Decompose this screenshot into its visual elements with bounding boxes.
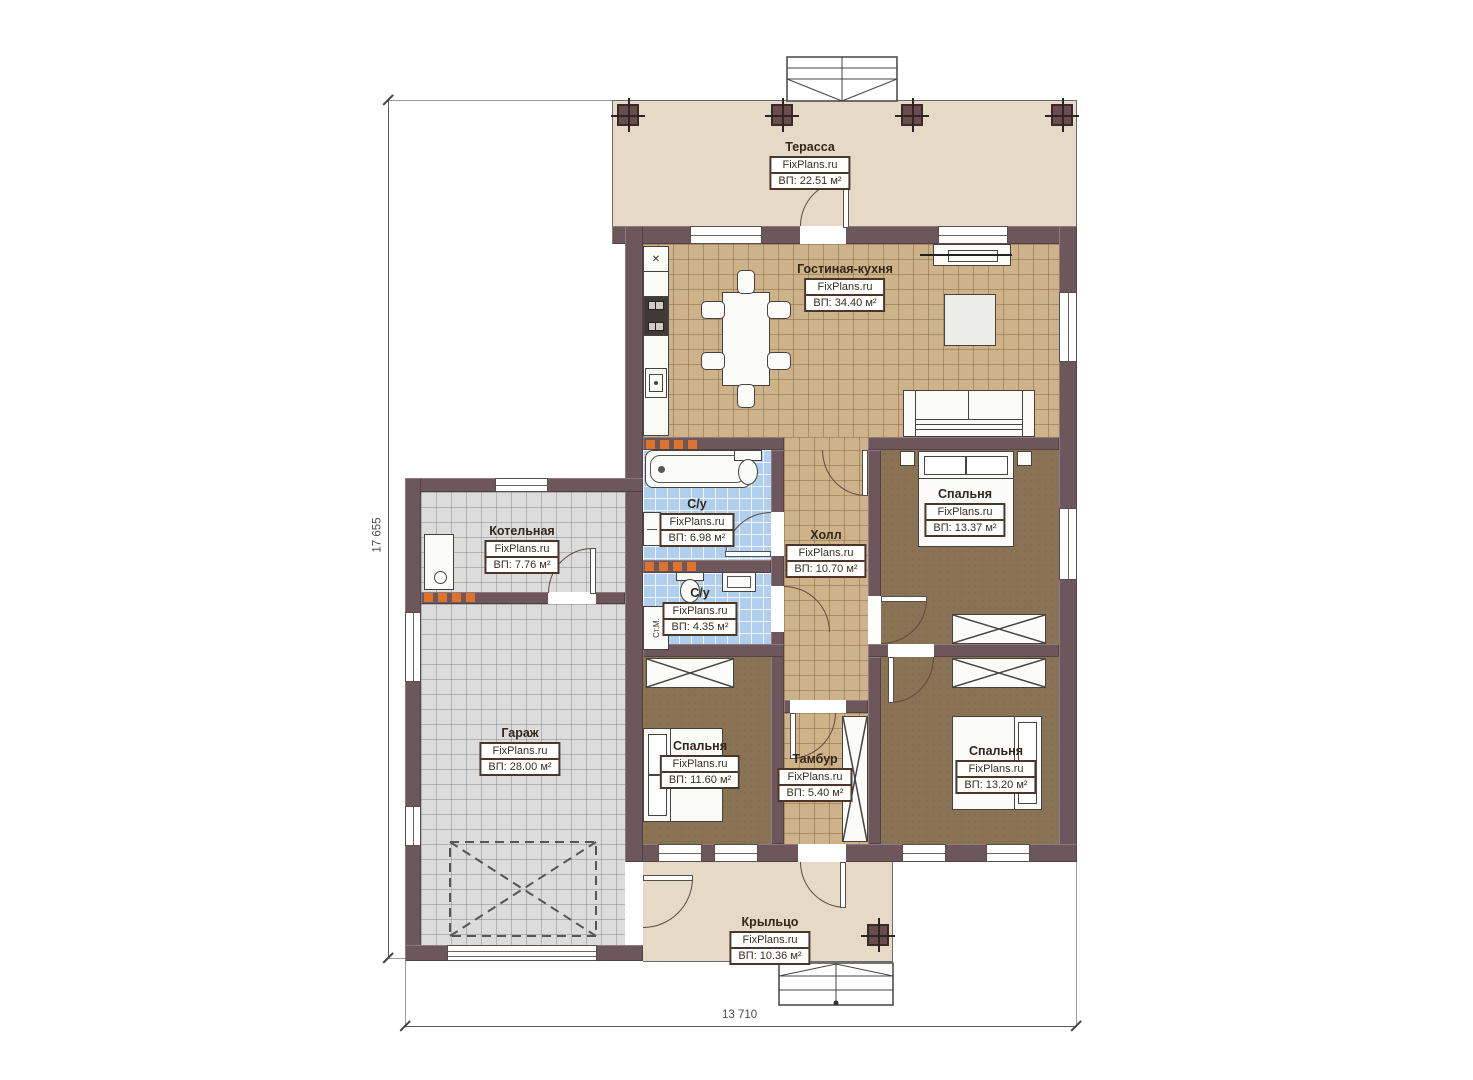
chair [767, 352, 791, 370]
brand-watermark: FixPlans.ru [486, 542, 557, 558]
window [1059, 292, 1077, 362]
wall-left-main [625, 226, 643, 862]
room-area: ВП: 28.00 м² [481, 760, 558, 774]
dimension-extension [1076, 862, 1077, 1026]
terrace-stairs [786, 56, 898, 102]
room-area: ВП: 11.60 м² [662, 773, 738, 787]
door-opening [625, 878, 643, 928]
brand-watermark: FixPlans.ru [661, 515, 732, 531]
room-label-garage: Гараж FixPlans.ru ВП: 28.00 м² [479, 726, 560, 776]
coffee-table [944, 294, 996, 346]
room-label-bathroom-small: С/у FixPlans.ru ВП: 4.35 м² [662, 586, 737, 636]
door-leaf [590, 548, 596, 594]
chair [737, 384, 755, 408]
brand-watermark: FixPlans.ru [481, 744, 558, 760]
room-area: ВП: 10.36 м² [731, 949, 808, 963]
room-label-bedroom-left: Спальня FixPlans.ru ВП: 11.60 м² [660, 739, 740, 789]
wall-bedroom-right-left [868, 657, 881, 844]
stove [644, 296, 668, 336]
dimension-line-bottom [405, 1026, 1077, 1027]
floor-plan: ✕ Ст.М. [0, 0, 1473, 1080]
door-opening [798, 844, 846, 862]
room-area: ВП: 6.98 м² [661, 531, 732, 545]
radiator [424, 593, 478, 602]
terrace-post [1051, 104, 1073, 126]
brand-watermark: FixPlans.ru [926, 505, 1003, 521]
door-opening [771, 512, 784, 556]
door-leaf [840, 862, 846, 908]
room-info-box: FixPlans.ru ВП: 5.40 м² [777, 768, 852, 802]
brand-watermark: FixPlans.ru [664, 604, 735, 620]
door-opening [888, 644, 934, 657]
dining-table [722, 292, 770, 386]
room-info-box: FixPlans.ru ВП: 22.51 м² [769, 156, 850, 190]
terrace-post [901, 104, 923, 126]
brand-watermark: FixPlans.ru [806, 280, 883, 296]
door-opening [548, 592, 596, 604]
dimension-extension [388, 100, 612, 101]
wardrobe [646, 658, 734, 688]
window [714, 844, 758, 862]
terrace-post [617, 104, 639, 126]
window [690, 226, 762, 244]
window [405, 806, 421, 846]
wardrobe [952, 614, 1046, 644]
window [405, 612, 421, 682]
window [1059, 508, 1077, 580]
room-label-terrace: Терасса FixPlans.ru ВП: 22.51 м² [769, 140, 850, 190]
room-label-bedroom-right: Спальня FixPlans.ru ВП: 13.20 м² [955, 744, 1036, 794]
porch-post [867, 924, 889, 946]
dimension-line-left [388, 100, 389, 958]
parking-zone [448, 840, 598, 938]
door-leaf [862, 450, 868, 496]
window [986, 844, 1030, 862]
sofa [903, 390, 1035, 437]
wall-kitchen-bottom-right [868, 437, 1059, 450]
door-opening [790, 700, 846, 713]
room-name: Котельная [484, 524, 559, 538]
room-info-box: FixPlans.ru ВП: 6.98 м² [659, 513, 734, 547]
room-area: ВП: 13.37 м² [926, 521, 1003, 535]
room-name: Тамбур [777, 752, 852, 766]
garage-door [447, 945, 597, 961]
room-area: ВП: 13.20 м² [957, 778, 1034, 792]
brand-watermark: FixPlans.ru [771, 158, 848, 174]
room-info-box: FixPlans.ru ВП: 13.37 м² [924, 503, 1005, 537]
window [658, 844, 702, 862]
room-name: Терасса [769, 140, 850, 154]
door-leaf [888, 657, 894, 703]
room-name: Спальня [955, 744, 1036, 758]
brand-watermark: FixPlans.ru [779, 770, 850, 786]
kitchen-sink-icon: ✕ [643, 246, 669, 272]
room-label-living-kitchen: Гостиная-кухня FixPlans.ru ВП: 34.40 м² [797, 262, 893, 312]
room-label-hall: Холл FixPlans.ru ВП: 10.70 м² [785, 528, 866, 578]
door-leaf [643, 875, 693, 881]
room-info-box: FixPlans.ru ВП: 4.35 м² [662, 602, 737, 636]
brand-watermark: FixPlans.ru [731, 933, 808, 949]
kitchen-counter [643, 246, 669, 436]
room-info-box: FixPlans.ru ВП: 10.36 м² [729, 931, 810, 965]
window [902, 844, 946, 862]
porch-stairs [778, 962, 894, 1006]
wall-wing-left [405, 478, 421, 961]
bathroom-sink [643, 512, 661, 546]
toilet-bowl [738, 459, 758, 485]
room-name: Крыльцо [729, 915, 810, 929]
room-label-bathroom-big: С/у FixPlans.ru ВП: 6.98 м² [659, 497, 734, 547]
room-area: ВП: 10.70 м² [787, 562, 864, 576]
room-name: С/у [659, 497, 734, 511]
tv-line [920, 254, 1012, 256]
room-label-porch: Крыльцо FixPlans.ru ВП: 10.36 м² [729, 915, 810, 965]
hall-passage-floor [784, 437, 868, 450]
room-name: Гостиная-кухня [797, 262, 893, 276]
dimension-height: 17 655 [372, 517, 384, 552]
room-area: ВП: 4.35 м² [664, 620, 735, 634]
brand-watermark: FixPlans.ru [662, 757, 738, 773]
room-label-tambour: Тамбур FixPlans.ru ВП: 5.40 м² [777, 752, 852, 802]
terrace-post [771, 104, 793, 126]
window [495, 478, 548, 492]
kitchen-sink-lower [645, 368, 667, 398]
room-area: ВП: 5.40 м² [779, 786, 850, 800]
room-info-box: FixPlans.ru ВП: 10.70 м² [785, 544, 866, 578]
radiator [645, 562, 699, 571]
room-name: Спальня [660, 739, 740, 753]
nightstand [900, 451, 915, 466]
door-leaf [725, 551, 771, 557]
chair [701, 301, 725, 319]
room-label-boiler: Котельная FixPlans.ru ВП: 7.76 м² [484, 524, 559, 574]
room-name: С/у [662, 586, 737, 600]
chair [701, 352, 725, 370]
room-info-box: FixPlans.ru ВП: 34.40 м² [804, 278, 885, 312]
room-area: ВП: 34.40 м² [806, 296, 883, 310]
room-area: ВП: 7.76 м² [486, 558, 557, 572]
room-info-box: FixPlans.ru ВП: 13.20 м² [955, 760, 1036, 794]
room-info-box: FixPlans.ru ВП: 28.00 м² [479, 742, 560, 776]
brand-watermark: FixPlans.ru [957, 762, 1034, 778]
wardrobe [952, 658, 1046, 688]
nightstand [1017, 451, 1032, 466]
room-label-bedroom-top: Спальня FixPlans.ru ВП: 13.37 м² [924, 487, 1005, 537]
door-opening [868, 596, 881, 644]
dimension-extension [388, 958, 405, 959]
dimension-width: 13 710 [722, 1009, 757, 1021]
chair [737, 270, 755, 294]
room-name: Гараж [479, 726, 560, 740]
room-info-box: FixPlans.ru ВП: 11.60 м² [660, 755, 740, 789]
chair [767, 301, 791, 319]
door-opening [800, 226, 846, 244]
room-name: Холл [785, 528, 866, 542]
room-name: Спальня [924, 487, 1005, 501]
radiator [646, 440, 700, 449]
room-area: ВП: 22.51 м² [771, 174, 848, 188]
brand-watermark: FixPlans.ru [787, 546, 864, 562]
door-opening [771, 586, 784, 632]
door-leaf [881, 596, 927, 602]
dimension-extension [405, 961, 406, 1026]
boiler-unit [424, 534, 454, 590]
room-info-box: FixPlans.ru ВП: 7.76 м² [484, 540, 559, 574]
window [938, 226, 1008, 244]
